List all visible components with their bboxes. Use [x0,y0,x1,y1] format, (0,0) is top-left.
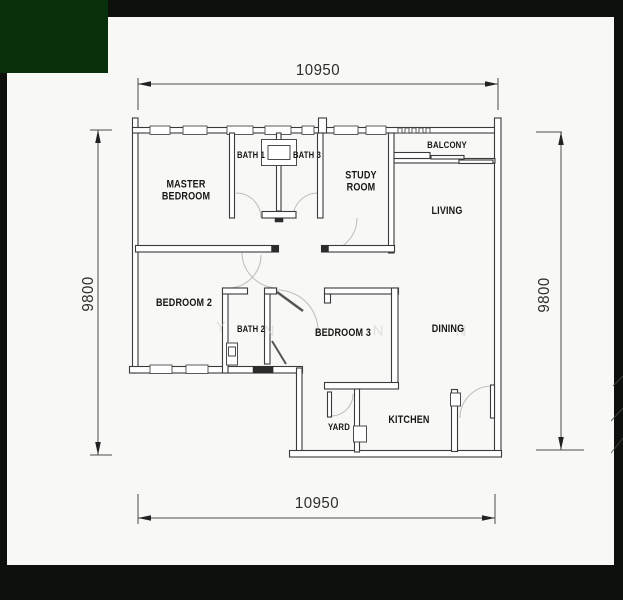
room-label-study-room: STUDY ROOM [345,170,376,193]
decorative-streaks [611,376,623,453]
room-label-bath-3: BATH 3 [293,151,321,161]
watermark-letter: N [373,323,384,340]
dimension-bottom: 10950 [295,495,339,513]
dimension-top: 10950 [296,62,340,80]
outer-walls [130,118,502,457]
room-label-bath-1: BATH 1 [237,151,265,161]
room-label-bath-2: BATH 2 [237,325,265,335]
watermark-letter: Y [216,319,226,336]
room-label-bedroom-2: BEDROOM 2 [156,298,212,310]
room-label-balcony: BALCONY [427,141,467,151]
room-label-yard: YARD [328,423,350,433]
room-label-living: LIVING [431,206,462,218]
dimension-left: 9800 [80,276,98,311]
room-label-bedroom-3: BEDROOM 3 [315,328,371,340]
floorplan-page: Y N N N MASTER BEDROOM BATH 1 BATH 3 STU… [0,0,623,600]
room-label-master-bedroom: MASTER BEDROOM [162,179,210,202]
dimension-right: 9800 [536,277,554,312]
room-label-kitchen: KITCHEN [388,415,429,427]
room-label-dining: DINING [432,324,465,336]
watermark-letter: N [264,323,275,340]
